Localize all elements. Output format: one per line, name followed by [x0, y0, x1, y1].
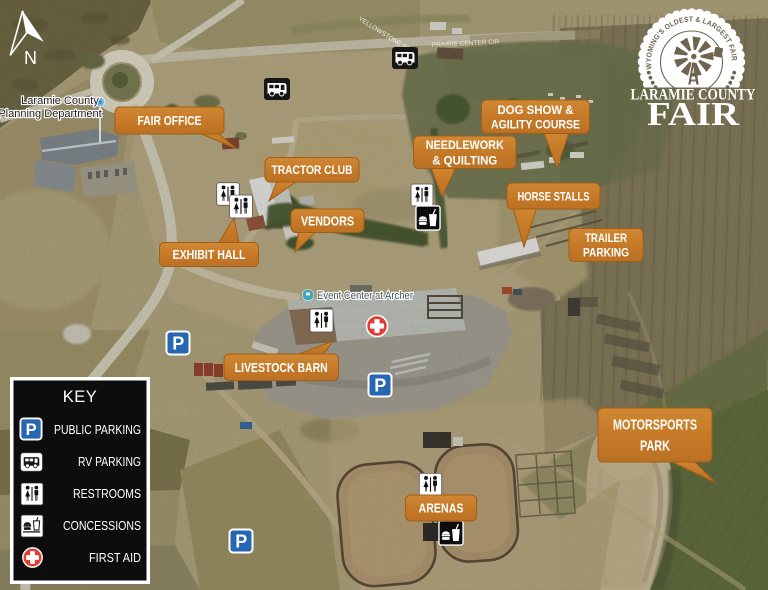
- svg-text:FAIR OFFICE: FAIR OFFICE: [138, 114, 202, 128]
- svg-text:Laramie County: Laramie County: [21, 95, 99, 107]
- svg-text:AGILITY COURSE: AGILITY COURSE: [491, 118, 580, 132]
- svg-text:Event Center at Archer: Event Center at Archer: [317, 290, 413, 302]
- svg-text:PARK: PARK: [640, 439, 670, 455]
- svg-text:FAIR: FAIR: [647, 96, 739, 133]
- svg-text:CONCESSIONS: CONCESSIONS: [63, 519, 141, 533]
- svg-text:TRACTOR CLUB: TRACTOR CLUB: [272, 163, 353, 177]
- svg-text:KEY: KEY: [63, 388, 98, 406]
- svg-text:Planning Department: Planning Department: [0, 108, 102, 120]
- svg-text:PARKING: PARKING: [583, 246, 629, 260]
- svg-text:RESTROOMS: RESTROOMS: [73, 487, 141, 501]
- svg-text:FIRST AID: FIRST AID: [89, 551, 141, 565]
- svg-text:EXHIBIT HALL: EXHIBIT HALL: [173, 248, 246, 262]
- svg-text:& QUILTING: & QUILTING: [432, 154, 497, 168]
- svg-text:TRAILER: TRAILER: [585, 231, 627, 245]
- svg-text:N: N: [24, 48, 37, 68]
- svg-text:NEEDLEWORK: NEEDLEWORK: [426, 138, 504, 152]
- svg-text:PUBLIC PARKING: PUBLIC PARKING: [54, 423, 141, 437]
- svg-text:MOTORSPORTS: MOTORSPORTS: [613, 418, 697, 434]
- svg-text:HORSE STALLS: HORSE STALLS: [518, 190, 590, 204]
- svg-text:LIVESTOCK BARN: LIVESTOCK BARN: [235, 360, 328, 375]
- svg-text:ARENAS: ARENAS: [419, 501, 464, 516]
- svg-text:RV PARKING: RV PARKING: [78, 455, 141, 469]
- svg-text:DOG SHOW &: DOG SHOW &: [498, 103, 574, 117]
- svg-text:VENDORS: VENDORS: [301, 214, 354, 228]
